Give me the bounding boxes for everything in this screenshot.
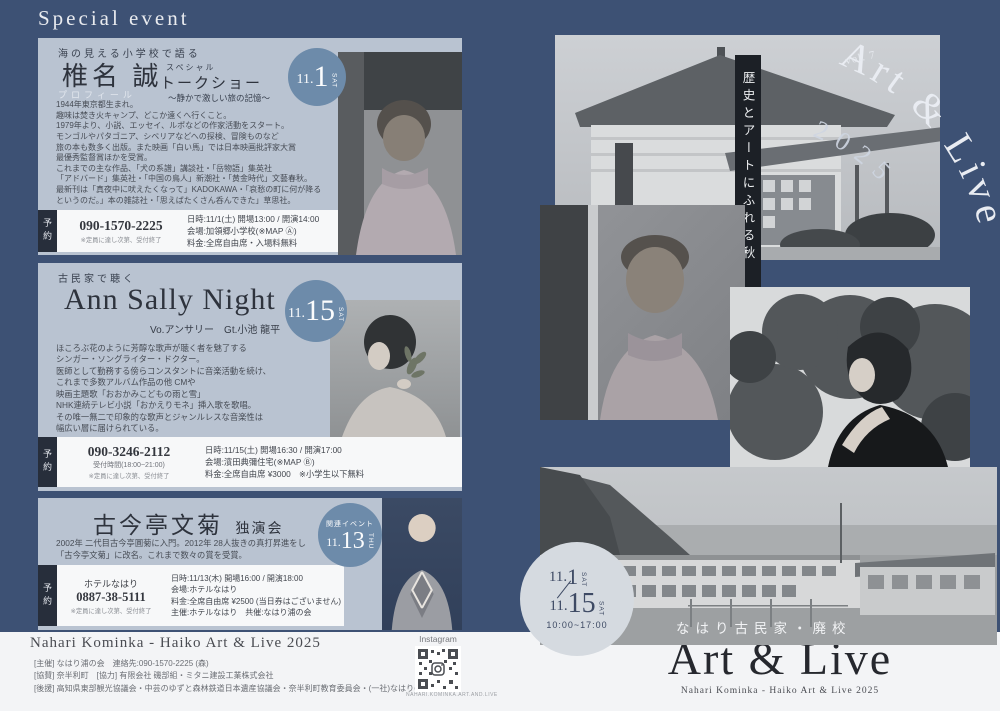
event-card-ann-sally: 古民家で聴く Ann Sally Night Vo.アンサリー Gt.小池 龍平… bbox=[38, 263, 462, 491]
event2-performers: Vo.アンサリー Gt.小池 龍平 bbox=[150, 321, 280, 336]
event2-date-month: 11. bbox=[288, 307, 305, 324]
flyer-poster: Special event 海の見える小学校で語る 椎名 誠 スペシャル トーク… bbox=[0, 0, 1000, 711]
event3-date-badge: 関連イベント 11. 13 THU bbox=[318, 503, 382, 567]
event3-date-dow: THU bbox=[367, 533, 374, 551]
event3-phone-note: ※定員に達し次第、受付終了 bbox=[61, 606, 161, 615]
event1-date-month: 11. bbox=[297, 73, 314, 90]
event1-details: 日時:11/1(土) 開場13:00 / 開演14:00 会場:加領郷小学校(※… bbox=[177, 213, 319, 249]
event1-description: 1944年東京都生まれ。 趣味は焚き火キャンプ、どこか遠くへ行くこと。 1979… bbox=[56, 100, 342, 206]
event1-date-dow: SAT bbox=[330, 73, 337, 90]
event1-phone-note: ※定員に達し次第、受付終了 bbox=[65, 235, 177, 244]
schedule-hours: 10:00~17:00 bbox=[546, 620, 607, 630]
special-event-header: Special event bbox=[38, 6, 190, 31]
schedule-end-day: 15 bbox=[568, 592, 596, 616]
event3-venue-name: ホテルなはり bbox=[61, 577, 161, 590]
svg-text:2025: 2025 bbox=[810, 115, 904, 193]
event3-date-day: 13 bbox=[341, 531, 365, 551]
event1-subtitle: トークショー bbox=[160, 72, 262, 93]
instagram-label: Instagram bbox=[406, 634, 470, 644]
event1-reserve-tab: 予約 bbox=[38, 210, 57, 252]
event2-description: ほころぶ花のように芳醇な歌声が聴く者を魅了する シンガー・ソングライター・ドクタ… bbox=[56, 343, 332, 435]
event1-phone: 090-1570-2225 bbox=[65, 218, 177, 234]
event-card-shiina-makoto: 海の見える小学校で語る 椎名 誠 スペシャル トークショー 〜静かで激しい旅の記… bbox=[38, 38, 462, 255]
schedule-date-circle: 11. 1 SAT 11. 15 SAT 10:00~17:00 bbox=[520, 542, 634, 656]
instagram-block: Instagram bbox=[406, 634, 470, 698]
event2-details: 日時:11/15(土) 開場16:30 / 開演17:00 会場:濱田典彌住宅(… bbox=[195, 444, 364, 480]
event3-portrait-photo bbox=[382, 498, 462, 630]
event1-info-bar: 予約 090-1570-2225 ※定員に達し次第、受付終了 日時:11/1(土… bbox=[38, 210, 338, 252]
instagram-qr-caption: NAHARI.KOMINKA.ART.AND.LIVE bbox=[406, 692, 470, 698]
event2-date-day: 15 bbox=[305, 298, 335, 324]
event1-portrait-photo bbox=[338, 52, 462, 255]
event3-title-suffix: 独演会 bbox=[235, 522, 283, 537]
footer-heading: Nahari Kominka - Haiko Art & Live 2025 bbox=[30, 635, 321, 652]
photo-shiina-portrait bbox=[540, 205, 745, 420]
event-card-kokontei-bungiku: 古今亭文菊 独演会 2002年 二代目古今亭圓菊に入門。2012年 28人抜きの… bbox=[38, 498, 462, 630]
venue-overlay-text: なはり古民家・廃校 bbox=[676, 617, 852, 637]
event2-phone: 090-3246-2112 bbox=[63, 444, 195, 460]
event2-reserve-tab: 予約 bbox=[38, 437, 57, 487]
event3-date-month: 11. bbox=[326, 536, 341, 551]
event2-info-bar: 予約 090-3246-2112 受付時間(18:00~21:00) ※定員に達… bbox=[38, 437, 462, 487]
arc-logo-art-and-live: Art & Live 2025 bbox=[812, 14, 1000, 314]
event1-date-day: 1 bbox=[313, 64, 328, 90]
event3-title-row: 古今亭文菊 独演会 bbox=[93, 506, 283, 540]
event2-phone-note: ※定員に達し次第、受付終了 bbox=[63, 471, 195, 480]
photo-ann-sally-portrait bbox=[730, 287, 970, 467]
event3-info-bar: 予約 ホテルなはり 0887-38-5111 ※定員に達し次第、受付終了 日時:… bbox=[38, 565, 344, 626]
event3-title: 古今亭文菊 bbox=[93, 513, 223, 538]
event2-title: Ann Sally Night bbox=[64, 283, 276, 317]
schedule-start-month: 11. bbox=[549, 570, 567, 587]
event2-date-badge: 11. 15 SAT bbox=[285, 280, 347, 342]
instagram-qr-code bbox=[415, 646, 461, 692]
event2-portrait-photo bbox=[330, 300, 460, 437]
footer-logo-caption: Nahari Kominka - Haiko Art & Live 2025 bbox=[600, 686, 960, 696]
event3-details: 日時:11/13(木) 開場16:00 / 開演18:00 会場:ホテルなはり … bbox=[161, 573, 341, 618]
event2-date-dow: SAT bbox=[337, 307, 344, 324]
event2-phone-hours: 受付時間(18:00~21:00) bbox=[63, 460, 195, 470]
footer-credits: [主催] なはり浦の会 連絡先:090-1570-2225 (森) [協賛] 奈… bbox=[34, 658, 430, 695]
event3-phone: 0887-38-5111 bbox=[61, 590, 161, 605]
event3-description: 2002年 二代目古今亭圓菊に入門。2012年 28人抜きの真打昇進をし 「古今… bbox=[56, 537, 326, 561]
event1-date-badge: 11. 1 SAT bbox=[288, 48, 346, 106]
schedule-end-dow: SAT bbox=[598, 601, 605, 616]
event3-reserve-tab: 予約 bbox=[38, 565, 57, 626]
schedule-start-dow: SAT bbox=[580, 572, 587, 587]
schedule-end-month: 11. bbox=[549, 599, 567, 616]
